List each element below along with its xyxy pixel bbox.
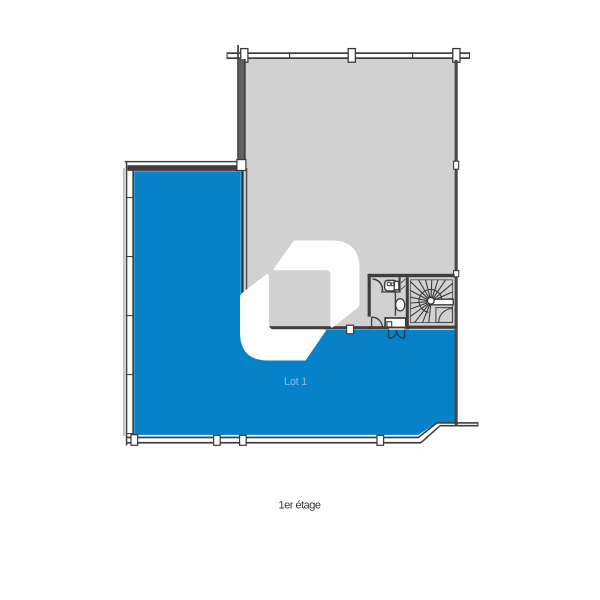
svg-text:Lot 1: Lot 1 — [284, 376, 307, 388]
svg-text:1er étage: 1er étage — [279, 500, 321, 512]
